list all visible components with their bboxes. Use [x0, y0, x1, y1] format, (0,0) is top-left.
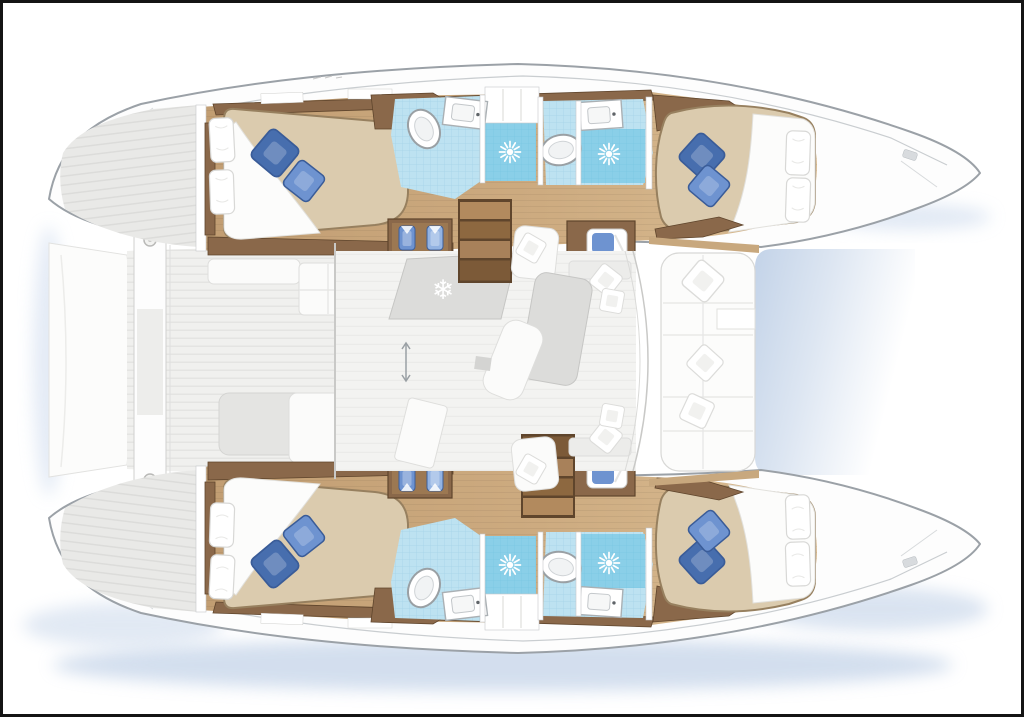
cockpit-bench [208, 259, 300, 284]
forward-cockpit [649, 237, 759, 486]
companionway-steps-port [458, 199, 512, 283]
lounge-shelf [717, 309, 755, 329]
white-pillow [599, 288, 625, 314]
catamaran-floor-plan: ❄ [0, 0, 1024, 717]
table-base [474, 356, 492, 371]
port-hull-interior [60, 87, 817, 263]
fridge-icon: ❄ [432, 275, 455, 306]
trampoline [755, 249, 915, 475]
floor-plan-drawing: ❄ [3, 3, 1021, 714]
cockpit-table [134, 211, 166, 509]
white-pillow [599, 403, 625, 429]
